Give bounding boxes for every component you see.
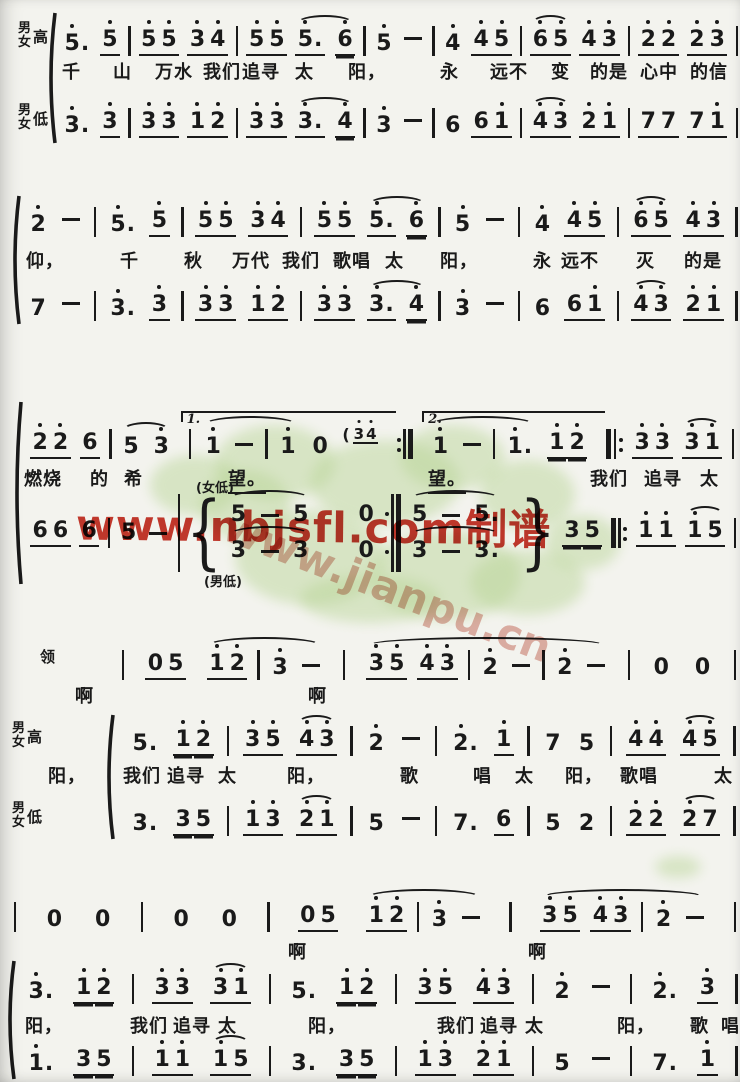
score-element: 3 bbox=[291, 1052, 306, 1076]
octave-dot bbox=[481, 968, 485, 972]
score-element: 4 bbox=[686, 209, 701, 233]
note-group: 5 bbox=[121, 435, 141, 459]
octave-dot bbox=[587, 20, 591, 24]
octave-dot bbox=[691, 285, 695, 289]
octave-dot bbox=[695, 20, 699, 24]
score-element: 1 bbox=[658, 519, 673, 543]
octave-dot bbox=[425, 644, 429, 648]
note-group: 35 bbox=[243, 728, 284, 756]
score-element: 1 bbox=[705, 431, 720, 455]
octave-dot bbox=[715, 102, 719, 106]
note: 4 bbox=[626, 728, 646, 756]
octave-dot bbox=[639, 201, 643, 205]
lyric-syllable: 阳， bbox=[348, 58, 386, 84]
note-group: 2 bbox=[653, 908, 673, 932]
score-element: 1 bbox=[496, 1048, 511, 1072]
note-group: 43 bbox=[579, 28, 620, 56]
barline bbox=[269, 1046, 271, 1076]
score-element: 1 bbox=[250, 293, 265, 317]
score-element: 1 bbox=[206, 435, 221, 459]
note: 2. bbox=[650, 980, 680, 1004]
note: 7 bbox=[700, 808, 720, 836]
score-element: 3 bbox=[110, 297, 125, 321]
score-element: 2 bbox=[661, 28, 676, 52]
barline bbox=[363, 108, 365, 138]
score-element: 1 bbox=[175, 1048, 190, 1072]
octave-dot bbox=[374, 896, 378, 900]
parenthesis: ( bbox=[342, 426, 349, 444]
score-element: 3 bbox=[161, 110, 176, 134]
score-element: 5 bbox=[269, 28, 284, 52]
octave-dot bbox=[251, 720, 255, 724]
octave-dot bbox=[555, 423, 559, 427]
volta-number: 1. bbox=[187, 412, 201, 427]
note: 1 bbox=[707, 110, 727, 138]
score-element: 0 bbox=[300, 904, 315, 928]
note: 5 bbox=[435, 976, 455, 1004]
score-element: 3 bbox=[152, 293, 167, 317]
lyric-syllable: 永 bbox=[533, 247, 552, 273]
score-element: 4 bbox=[474, 28, 489, 52]
note: 1. bbox=[505, 435, 535, 459]
octave-dot bbox=[712, 285, 716, 289]
barline bbox=[628, 108, 630, 138]
note-group: 4 bbox=[406, 293, 426, 321]
note-group: 3. bbox=[289, 1052, 319, 1076]
barline bbox=[300, 207, 302, 237]
note: 5. bbox=[289, 980, 319, 1004]
note-group: 6 bbox=[494, 808, 514, 836]
score-element: 男 bbox=[18, 104, 31, 118]
note-group: 5 bbox=[100, 28, 120, 56]
note: 6 bbox=[406, 209, 426, 237]
note-group: 6 bbox=[406, 209, 426, 237]
note: 1 bbox=[585, 293, 605, 321]
octave-dot bbox=[108, 102, 112, 106]
score-element: 1 bbox=[29, 1052, 44, 1076]
octave-dot bbox=[343, 201, 347, 205]
octave-dot bbox=[276, 285, 280, 289]
barline bbox=[438, 291, 440, 321]
note: 4 bbox=[335, 110, 355, 138]
note: 5 bbox=[195, 209, 215, 237]
note: 4 bbox=[564, 209, 584, 237]
lyrics-line: 啊啊 bbox=[0, 682, 740, 706]
note-group: 3 bbox=[149, 293, 169, 321]
note: 0 bbox=[145, 652, 165, 680]
slur-group: 11. bbox=[430, 429, 534, 459]
dash-note bbox=[486, 302, 504, 305]
note-group: 12 bbox=[187, 110, 228, 138]
note: 5 bbox=[246, 28, 266, 56]
note-group: 0 bbox=[219, 908, 239, 932]
note: 2 bbox=[94, 976, 114, 1004]
score-element: 1 bbox=[602, 110, 617, 134]
octave-dot bbox=[437, 900, 441, 904]
note: 1 bbox=[494, 1048, 514, 1076]
note-group: 5. bbox=[108, 213, 138, 237]
lyrics-line: 阳，我们追寻太阳，我们追寻太阳，歌唱 bbox=[0, 1012, 740, 1036]
note-group: 15 bbox=[210, 1048, 251, 1076]
slur-group: 35432 bbox=[540, 902, 706, 932]
note-group: 43 bbox=[530, 110, 571, 138]
note-group: 0 bbox=[651, 656, 671, 680]
octave-dot bbox=[691, 201, 695, 205]
lyric-syllable: 千 bbox=[120, 247, 139, 273]
barline bbox=[435, 806, 437, 836]
octave-dot bbox=[34, 1044, 38, 1048]
note: 1 bbox=[248, 293, 268, 321]
note: 3 bbox=[246, 110, 266, 138]
note: 1 bbox=[336, 976, 356, 1004]
score-element bbox=[397, 448, 401, 452]
barline bbox=[94, 207, 96, 237]
octave-dot bbox=[459, 724, 463, 728]
note: 3 bbox=[703, 209, 723, 237]
slur-group: 45 bbox=[680, 728, 721, 756]
lyric-syllable: 太 bbox=[385, 247, 404, 273]
note-group: 5 bbox=[543, 812, 563, 836]
score-element: 3 bbox=[564, 519, 579, 543]
note: 3 bbox=[335, 293, 355, 321]
note: 1 bbox=[173, 728, 193, 756]
score-element: 1 bbox=[213, 1048, 228, 1072]
note: 1 bbox=[599, 110, 619, 138]
score-element: 男 bbox=[12, 722, 25, 736]
note: 3. bbox=[295, 110, 325, 138]
octave-dot bbox=[235, 644, 239, 648]
note-group: 05 bbox=[145, 652, 186, 680]
score-element: 6 bbox=[633, 209, 648, 233]
octave-dot bbox=[423, 1040, 427, 1044]
octave-dot bbox=[34, 972, 38, 976]
note-group: 22 bbox=[30, 431, 71, 459]
note: 5 bbox=[314, 209, 334, 237]
score-element: 1 bbox=[507, 435, 522, 459]
note: 2 bbox=[552, 980, 572, 1004]
lyric-syllable: 追寻 bbox=[167, 762, 205, 788]
score-element: 1 bbox=[369, 904, 384, 928]
octave-dot bbox=[201, 720, 205, 724]
note-group: 2 bbox=[576, 812, 596, 836]
octave-dot bbox=[322, 201, 326, 205]
score-element: 6 bbox=[33, 519, 48, 543]
lyric-syllable: 阳， bbox=[440, 247, 478, 273]
lyrics-line: 啊啊 bbox=[0, 938, 740, 962]
score-element: 7 bbox=[545, 732, 560, 756]
augmentation-dot: . bbox=[314, 28, 322, 52]
note-group: 0 bbox=[310, 435, 330, 459]
octave-dot bbox=[688, 720, 692, 724]
lyric-syllable: 啊 bbox=[528, 938, 547, 964]
score-element: 2 bbox=[33, 431, 48, 455]
note: 1 bbox=[703, 293, 723, 321]
score-element: 1 bbox=[280, 435, 295, 459]
barline bbox=[735, 207, 737, 237]
lyric-syllable: 山 bbox=[113, 58, 132, 84]
score-element: 0 bbox=[695, 656, 710, 680]
barline bbox=[735, 1046, 737, 1076]
note: 2 bbox=[30, 431, 50, 459]
note: 1 bbox=[243, 808, 263, 836]
barline bbox=[343, 650, 345, 680]
note: 2 bbox=[28, 213, 48, 237]
slur-group: 3.4 bbox=[295, 110, 355, 138]
augmentation-dot: . bbox=[524, 435, 532, 459]
score-element: 2 bbox=[557, 656, 572, 680]
score-element: 2 bbox=[689, 28, 704, 52]
note-group: 6 bbox=[80, 431, 100, 459]
note: 3 bbox=[151, 435, 171, 459]
barline bbox=[628, 650, 630, 680]
score-element: 女 bbox=[18, 36, 31, 50]
note: 2 bbox=[579, 110, 599, 138]
barline bbox=[350, 726, 352, 756]
note: 5 bbox=[491, 28, 511, 56]
dash-note bbox=[402, 817, 420, 820]
lyric-syllable: 歌 bbox=[400, 762, 419, 788]
note: 5 bbox=[700, 728, 720, 756]
score-element: 3 bbox=[218, 293, 233, 317]
system-bracket bbox=[5, 960, 17, 1080]
note: 1 bbox=[656, 519, 676, 547]
note: 2 bbox=[473, 1048, 493, 1076]
score-element: 6 bbox=[533, 28, 548, 52]
note: 5 bbox=[166, 652, 186, 680]
octave-dot bbox=[224, 201, 228, 205]
dash-note bbox=[235, 443, 253, 446]
score-element: 3 bbox=[654, 293, 669, 317]
note-group: 15 bbox=[685, 519, 726, 547]
score-element: 1 bbox=[687, 519, 702, 543]
score-element: 4 bbox=[628, 728, 643, 752]
slur-group: 15 bbox=[210, 1048, 251, 1076]
lyric-syllable: 太 bbox=[295, 58, 314, 84]
note: 5 bbox=[582, 519, 602, 547]
score-element: 5 bbox=[298, 28, 313, 52]
score-element: 2 bbox=[686, 293, 701, 317]
note: 5 bbox=[651, 209, 671, 237]
score-element: 5 bbox=[369, 812, 384, 836]
melody-line: 3.35132157.6522227 bbox=[130, 800, 736, 836]
cue-notes: (34 bbox=[342, 426, 377, 444]
barline bbox=[395, 1046, 397, 1076]
octave-dot bbox=[343, 102, 347, 106]
note-group: 1. bbox=[26, 1052, 56, 1076]
note: 3 bbox=[336, 1048, 356, 1076]
slur-group: 43 bbox=[631, 293, 672, 321]
score-element: 0 bbox=[654, 656, 669, 680]
octave-dot bbox=[619, 896, 623, 900]
repeat-begin-sign bbox=[606, 429, 622, 459]
lyric-syllable: 我们 bbox=[437, 1012, 475, 1038]
octave-dot bbox=[705, 968, 709, 972]
slur-group: 15 bbox=[685, 519, 726, 547]
dash-note bbox=[587, 664, 605, 667]
note: 3 bbox=[173, 808, 193, 836]
lyric-syllable: 唱 bbox=[473, 762, 492, 788]
score-element: 2 bbox=[482, 656, 497, 680]
slur-group: 123 bbox=[207, 650, 322, 680]
note: 3 bbox=[599, 28, 619, 56]
score-element: 6 bbox=[53, 519, 68, 543]
score-element: 5 bbox=[152, 209, 167, 233]
note: 6 bbox=[50, 519, 70, 547]
octave-dot bbox=[374, 644, 378, 648]
note-group: 2 bbox=[28, 213, 48, 237]
note-group: 27 bbox=[680, 808, 721, 836]
lyric-syllable: 啊 bbox=[308, 682, 327, 708]
dash-note bbox=[462, 916, 480, 919]
voice-annotation: (男低) bbox=[204, 571, 242, 590]
barline bbox=[611, 518, 616, 548]
note-group: 3 bbox=[374, 114, 394, 138]
augmentation-dot: . bbox=[385, 293, 393, 317]
note-group: 3. bbox=[367, 293, 397, 321]
note-group: 35 bbox=[366, 652, 407, 680]
slur-group: 31 bbox=[210, 976, 251, 1004]
score-element: 1 bbox=[433, 435, 448, 459]
note-group: 12 bbox=[336, 976, 377, 1004]
score-element: 3 bbox=[440, 652, 455, 676]
note-group: 43 bbox=[683, 209, 724, 237]
note-group: 13 bbox=[415, 1048, 456, 1076]
octave-dot bbox=[644, 511, 648, 515]
score-element: 2 bbox=[271, 293, 286, 317]
augmentation-dot: . bbox=[669, 1052, 677, 1076]
note: 0 bbox=[219, 908, 239, 932]
note: 5 bbox=[139, 28, 159, 56]
score-element: 1 bbox=[245, 808, 260, 832]
melody-line: 00000512335432 bbox=[14, 896, 736, 932]
barline bbox=[227, 726, 229, 756]
octave-dot bbox=[303, 102, 307, 106]
augmentation-dot: . bbox=[669, 980, 677, 1004]
lyrics-line: 仰，千秋万代我们歌唱太阳，永远不灭的是 bbox=[0, 247, 740, 271]
score-element: 5 bbox=[553, 28, 568, 52]
repeat-dots bbox=[623, 527, 627, 541]
melody-line: 25.55534555.654456543 bbox=[28, 201, 738, 237]
score-element: 1 bbox=[710, 110, 725, 134]
note: 6 bbox=[471, 110, 491, 138]
score-element bbox=[623, 527, 627, 531]
octave-dot bbox=[180, 1040, 184, 1044]
octave-dot bbox=[256, 201, 260, 205]
note: 3 bbox=[139, 110, 159, 138]
note: 1 bbox=[491, 110, 511, 138]
score-element: 男 bbox=[12, 802, 25, 816]
note: 6 bbox=[80, 431, 100, 459]
note: 6 bbox=[443, 114, 463, 138]
score-element: 3 bbox=[213, 976, 228, 1000]
octave-dot bbox=[275, 20, 279, 24]
note-group: 43 bbox=[631, 293, 672, 321]
dash-note bbox=[463, 443, 481, 446]
barline bbox=[132, 974, 134, 1004]
octave-dot bbox=[443, 1040, 447, 1044]
note-group: 12 bbox=[248, 293, 289, 321]
score-element: 0 bbox=[222, 908, 237, 932]
note: 6 bbox=[494, 808, 514, 836]
melody-line: 5.12354322.1754445 bbox=[130, 720, 736, 756]
note: 1 bbox=[636, 519, 656, 547]
note: 7. bbox=[451, 812, 481, 836]
score-element: 男 bbox=[18, 22, 31, 36]
barline bbox=[509, 902, 511, 932]
voice-label: 男女高 bbox=[18, 22, 48, 50]
dash-note bbox=[62, 218, 80, 221]
barline bbox=[732, 429, 734, 459]
octave-dot bbox=[414, 201, 418, 205]
note-group: 35 bbox=[73, 1048, 114, 1076]
score-element: 3 bbox=[339, 1048, 354, 1072]
note-group: 55 bbox=[314, 209, 355, 237]
octave-dot bbox=[325, 720, 329, 724]
score-element: 1 bbox=[319, 808, 334, 832]
melody-line: 0512335432200 bbox=[122, 644, 736, 680]
note: 3 bbox=[429, 908, 449, 932]
note-group: 12 bbox=[207, 652, 248, 680]
lyric-syllable: 万水 bbox=[155, 58, 193, 84]
barline bbox=[735, 291, 737, 321]
barline bbox=[628, 26, 630, 56]
lyric-syllable: 千 bbox=[62, 58, 81, 84]
score-element: 5 bbox=[585, 519, 600, 543]
octave-dot bbox=[646, 20, 650, 24]
augmentation-dot: . bbox=[127, 297, 135, 321]
barline bbox=[733, 806, 735, 836]
note: 3 bbox=[632, 431, 652, 459]
score-element: 男女 bbox=[12, 802, 25, 830]
lyric-syllable: 阳， bbox=[25, 1012, 63, 1038]
note-group: 31 bbox=[682, 431, 723, 459]
barline bbox=[618, 518, 620, 548]
note: 3 bbox=[248, 209, 268, 237]
note: 3 bbox=[562, 519, 582, 547]
volta-bracket: 2.11.12 bbox=[422, 411, 597, 459]
note: 5 bbox=[149, 209, 169, 237]
note: 1 bbox=[210, 1048, 230, 1076]
score-element: 5 bbox=[291, 980, 306, 1004]
score-element: 3 bbox=[496, 976, 511, 1000]
note: 7 bbox=[638, 110, 658, 138]
note-group: 1 bbox=[430, 435, 450, 459]
octave-dot bbox=[204, 285, 208, 289]
score-element: 3 bbox=[29, 980, 44, 1004]
note: 5. bbox=[108, 213, 138, 237]
note: 2 bbox=[208, 110, 228, 138]
barline bbox=[189, 429, 191, 459]
score-element: 女 bbox=[18, 118, 31, 132]
barline bbox=[630, 1046, 632, 1076]
score-element: 2 bbox=[369, 732, 384, 756]
octave-dot bbox=[219, 1040, 223, 1044]
note: 3. bbox=[26, 980, 56, 1004]
note: 3 bbox=[159, 110, 179, 138]
octave-dot bbox=[116, 289, 120, 293]
score-element: 3 bbox=[175, 808, 190, 832]
score-element: 3 bbox=[319, 728, 334, 752]
note-group: 5 bbox=[374, 32, 394, 56]
score-element: 2 bbox=[31, 213, 46, 237]
note-group: 33 bbox=[314, 293, 355, 321]
score-element: 4 bbox=[533, 110, 548, 134]
octave-dot bbox=[443, 968, 447, 972]
score-element: 1 bbox=[496, 728, 511, 752]
system-4: 0512335432200领啊啊5.12354322.1754445男女高阳，我… bbox=[0, 618, 740, 850]
score-element: 5 bbox=[196, 808, 211, 832]
octave-dot bbox=[587, 102, 591, 106]
